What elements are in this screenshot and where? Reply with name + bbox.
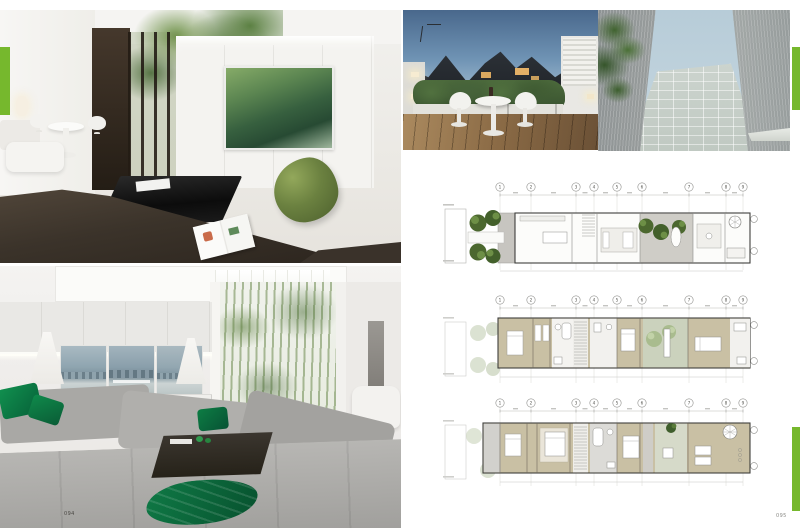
- tulip-chair: [88, 116, 106, 130]
- window-blind: [368, 321, 384, 391]
- dimension-text: [551, 305, 556, 306]
- dimension-text: [603, 192, 608, 193]
- dimension-text: [732, 305, 737, 306]
- plan-body: [443, 420, 757, 482]
- magazine-spread: 123456789: [0, 0, 800, 528]
- wall-lamp: [411, 72, 419, 77]
- grid-bubble-label: 3: [575, 185, 578, 190]
- louvre-screen: [563, 38, 596, 86]
- grid-bubble-label: 4: [593, 298, 596, 303]
- photo-living-room-gray-sectional: [0, 266, 401, 528]
- dimension-text: [627, 305, 632, 306]
- dimension-text: [705, 305, 710, 306]
- dimension-text: [583, 305, 588, 306]
- tulip-table-base: [483, 130, 504, 136]
- green-apple: [196, 436, 203, 442]
- grid-bubble-label: 9: [742, 298, 745, 303]
- plan-body: [443, 317, 757, 377]
- white-pouf: [6, 142, 64, 172]
- chair-base: [451, 122, 467, 127]
- grid-bubble-label: 6: [641, 298, 644, 303]
- grid-bubble-label: 4: [593, 401, 596, 406]
- grid-bubble-label: 1: [499, 185, 502, 190]
- photo-building-facade: [598, 10, 790, 151]
- dimension-text: [513, 305, 518, 306]
- dimension-text: [551, 408, 556, 409]
- tulip-table-stem: [491, 104, 496, 132]
- dimension-text: [663, 192, 668, 193]
- dimension-text: [663, 305, 668, 306]
- dimension-text: [583, 408, 588, 409]
- front-trees-faint: [470, 322, 500, 376]
- grid-bubble-label: 5: [616, 298, 619, 303]
- photo-rooftop-terrace: [403, 10, 598, 150]
- grid-bubble-label: 3: [575, 298, 578, 303]
- accent-bar-right-top: [792, 47, 800, 110]
- magazine-image: [202, 231, 213, 242]
- venice-skyline: [109, 370, 154, 378]
- grid-bubble-label: 5: [616, 401, 619, 406]
- grid-bubble-label: 2: [530, 401, 533, 406]
- tulip-chair: [30, 114, 48, 128]
- magazine-image: [228, 226, 239, 235]
- dimension-text: [705, 192, 710, 193]
- grid-bubble-label: 5: [616, 185, 619, 190]
- antenna: [420, 26, 423, 42]
- mountain-artwork: [224, 66, 334, 150]
- green-apple: [205, 438, 211, 443]
- grid-bubble-label: 8: [725, 401, 728, 406]
- venice-skyline: [61, 372, 106, 379]
- grid-bubble-label: 2: [530, 298, 533, 303]
- grid-bubble-label: 9: [742, 185, 745, 190]
- grid-bubble-label: 7: [688, 401, 691, 406]
- page-number-left: 094: [64, 511, 75, 517]
- dimension-text: [551, 192, 556, 193]
- caption-band: [113, 380, 150, 383]
- dimension-text: [513, 192, 518, 193]
- antenna: [427, 24, 441, 25]
- dimension-text: [732, 408, 737, 409]
- grid-bubble-label: 7: [688, 185, 691, 190]
- dimension-text: [627, 408, 632, 409]
- photo-living-room-moss-beanbag: [0, 10, 401, 263]
- lit-window: [481, 72, 491, 78]
- grid-bubble-label: 4: [593, 185, 596, 190]
- floor-plan-first: 123456789: [441, 287, 759, 399]
- green-pillow: [197, 406, 229, 431]
- grid-bubble-label: 1: [499, 298, 502, 303]
- dimension-text: [583, 192, 588, 193]
- grid-bubble-label: 7: [688, 298, 691, 303]
- dimension-text: [513, 408, 518, 409]
- chair-base: [517, 122, 533, 127]
- folding-glass-doors: [128, 32, 178, 182]
- floor-plan-ground: 123456789: [441, 174, 759, 286]
- grid-bubble-label: 8: [725, 185, 728, 190]
- grid-bubble-label: 9: [742, 401, 745, 406]
- accent-bar-right-bottom: [792, 427, 800, 511]
- book-stack: [170, 439, 192, 444]
- accent-bar-left: [0, 47, 10, 115]
- dark-door-frame: [92, 28, 130, 190]
- dimension-text: [627, 192, 632, 193]
- plan-body: [443, 204, 757, 271]
- dimension-text: [603, 305, 608, 306]
- wall-lamp: [587, 94, 594, 99]
- floor-plan-second: 123456789: [441, 390, 759, 502]
- grid-bubble-label: 1: [499, 401, 502, 406]
- dimension-text: [732, 192, 737, 193]
- bamboo-leaves: [598, 10, 664, 110]
- grid-bubble-label: 6: [641, 401, 644, 406]
- lit-window: [515, 68, 529, 75]
- page-number-right: 095: [776, 513, 787, 519]
- grid-bubble-label: 6: [641, 185, 644, 190]
- grid-bubble-label: 3: [575, 401, 578, 406]
- grid-bubble-label: 2: [530, 185, 533, 190]
- dimension-text: [663, 408, 668, 409]
- floor-lamp: [16, 96, 28, 116]
- dimension-text: [603, 408, 608, 409]
- dimension-text: [705, 408, 710, 409]
- grid-bubble-label: 8: [725, 298, 728, 303]
- cove-light: [180, 36, 370, 45]
